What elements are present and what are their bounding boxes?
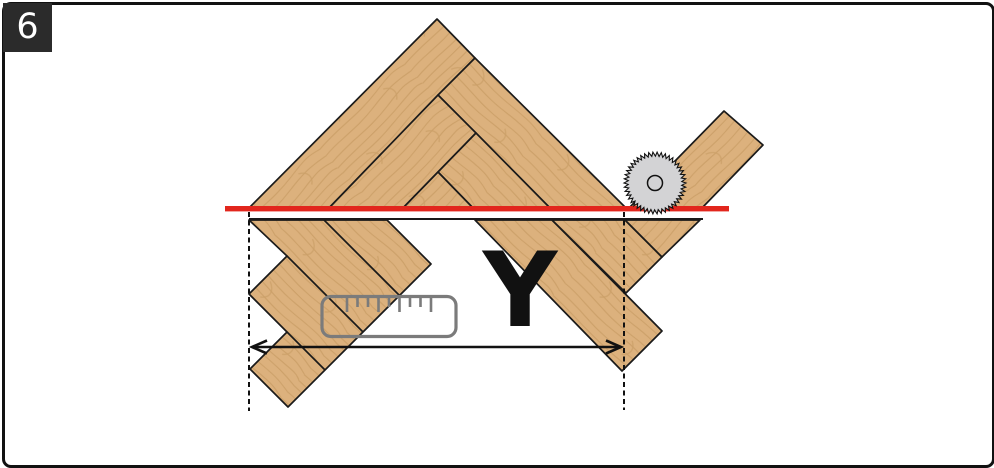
figure-number: 6: [16, 10, 38, 45]
figure-number-badge: 6: [3, 3, 52, 52]
plank-pyramid: [248, 19, 627, 209]
plank: [249, 220, 431, 407]
herringbone-cutting-diagram: Y: [0, 0, 994, 467]
dimension-label: Y: [482, 231, 559, 351]
offcut-planks: [249, 220, 700, 407]
